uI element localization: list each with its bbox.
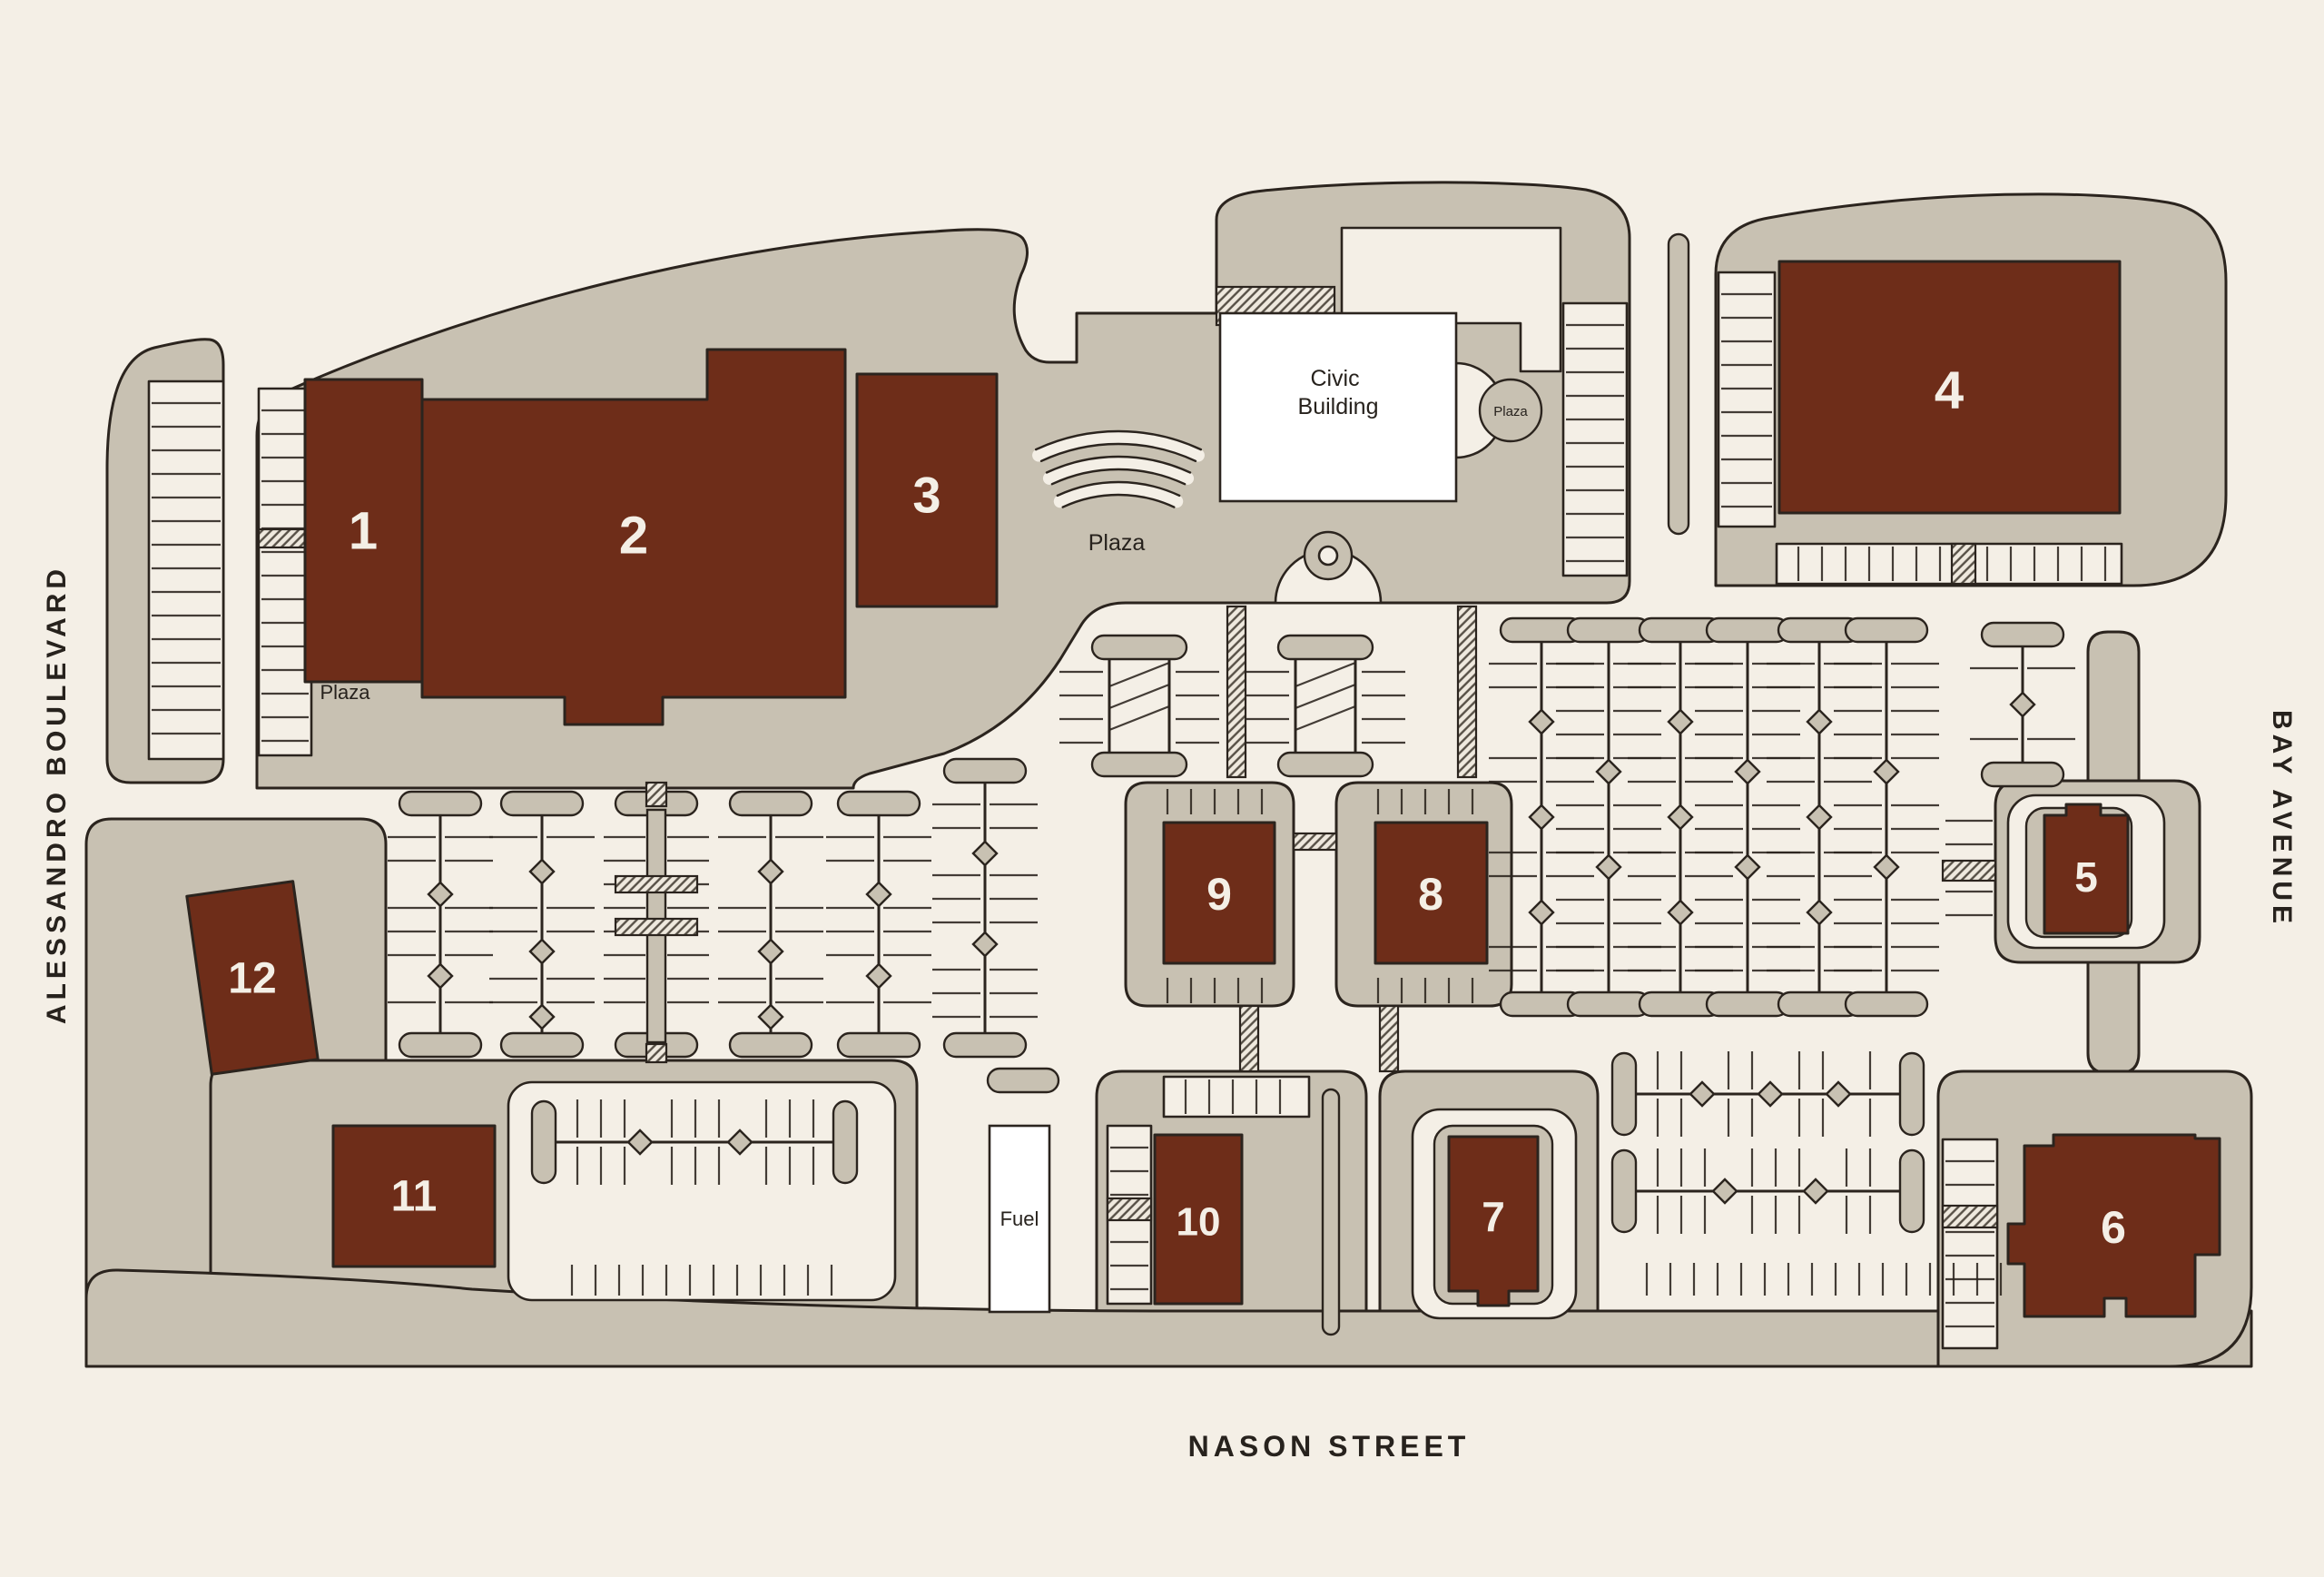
building-label-4: 4 — [1935, 361, 1964, 420]
building-label-10: 10 — [1177, 1200, 1221, 1245]
roundabout-center — [1319, 547, 1337, 565]
building-label-5: 5 — [2074, 853, 2098, 901]
building-label-1: 1 — [349, 502, 378, 561]
street-label-west: ALESSANDRO BOULEVARD — [42, 565, 72, 1024]
building-label-12: 12 — [228, 955, 276, 1003]
building-label-8: 8 — [1418, 869, 1443, 920]
site-plan: 1 2 3 4 5 6 7 8 9 10 11 12 Civic Buildin… — [0, 0, 2324, 1577]
plaza-label-circle: Plaza — [1493, 404, 1528, 419]
street-label-south: NASON STREET — [1188, 1430, 1471, 1463]
plaza-label-amphitheater: Plaza — [1088, 530, 1146, 556]
building-label-2: 2 — [619, 507, 648, 566]
street-label-east: BAY AVENUE — [2267, 710, 2297, 928]
building-label-3: 3 — [912, 467, 940, 524]
building-label-6: 6 — [2101, 1202, 2126, 1253]
fuel-label: Fuel — [1000, 1207, 1039, 1230]
building-label-9: 9 — [1206, 869, 1232, 920]
building-label-7: 7 — [1482, 1193, 1505, 1240]
plaza-label-pad: Plaza — [320, 681, 370, 704]
building-label-11: 11 — [391, 1173, 438, 1221]
